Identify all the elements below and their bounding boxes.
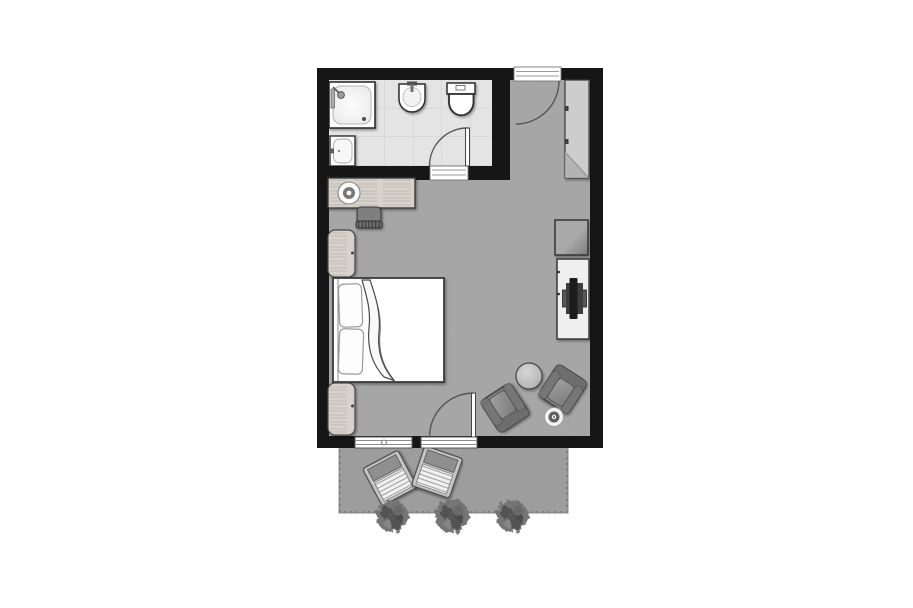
wardrobe-handle-top — [566, 106, 569, 111]
wall-right — [590, 68, 603, 448]
nightstand-handle — [351, 252, 354, 255]
bench — [328, 383, 355, 435]
toilet — [447, 83, 475, 115]
bench-handle — [351, 405, 354, 408]
nightstand — [328, 230, 355, 277]
coffee-table — [516, 363, 542, 389]
double-bed — [333, 278, 444, 382]
tv — [570, 278, 578, 319]
terrace — [339, 444, 568, 533]
sideboard-knob-top — [557, 271, 560, 274]
floor-lamp — [545, 408, 564, 427]
desk-tray — [338, 182, 360, 204]
pillow-top — [338, 284, 362, 328]
bathroom-door-leaf — [466, 128, 470, 166]
pillow-bottom — [338, 329, 364, 375]
bidet — [399, 82, 425, 113]
wall-left — [317, 68, 329, 448]
shrub-middle — [435, 499, 469, 533]
minibar — [555, 220, 588, 255]
vanity-sink — [330, 136, 355, 166]
toilet-bowl — [449, 94, 474, 115]
shower-head — [338, 92, 345, 99]
floor-plan — [0, 0, 913, 608]
desk-chair — [356, 207, 382, 228]
shower — [329, 82, 375, 128]
terrace-door-leaf — [472, 393, 476, 437]
window-handle — [382, 440, 387, 445]
tv-sideboard — [557, 259, 589, 339]
shower-rail — [331, 89, 335, 108]
wardrobe-handle-bottom — [566, 139, 569, 144]
wardrobe — [565, 80, 589, 178]
sink-faucet — [330, 149, 334, 154]
window — [355, 437, 412, 448]
sideboard-knob-bottom — [557, 293, 560, 296]
bathroom-wall-east — [492, 80, 510, 180]
shrub-left — [376, 500, 408, 532]
shrub-right — [496, 500, 528, 532]
shower-drain — [362, 117, 366, 121]
toilet-button — [456, 86, 465, 91]
floor-plan-page — [0, 0, 913, 608]
